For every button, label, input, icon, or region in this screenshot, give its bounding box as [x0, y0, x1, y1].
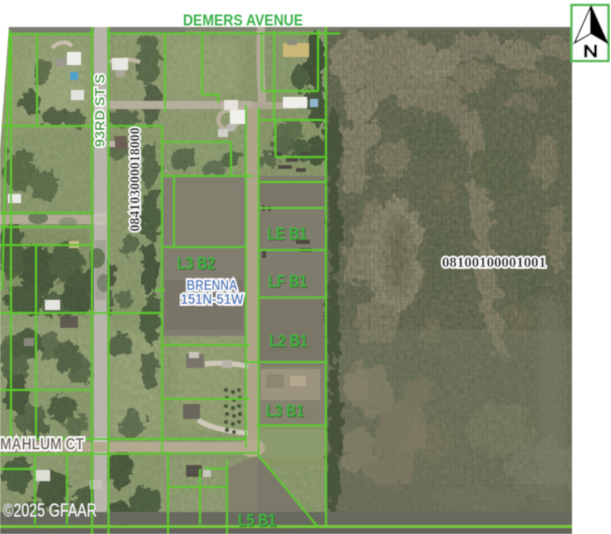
svg-text:L2 B1: L2 B1	[269, 331, 307, 351]
svg-text:LE B1: LE B1	[267, 224, 307, 244]
svg-text:©2025 GFAAR: ©2025 GFAAR	[3, 501, 97, 521]
svg-text:L3 B2: L3 B2	[177, 253, 215, 273]
svg-text:084103000018000: 084103000018000	[128, 128, 144, 232]
svg-text:MAHLUM CT: MAHLUM CT	[0, 435, 85, 454]
svg-text:93RD ST S: 93RD ST S	[92, 74, 108, 147]
svg-text:L5 B1: L5 B1	[238, 510, 276, 530]
svg-text:08100100001001: 08100100001001	[442, 255, 546, 271]
svg-text:DEMERS AVENUE: DEMERS AVENUE	[183, 13, 303, 30]
svg-text:LF B1: LF B1	[268, 271, 307, 291]
svg-text:L3 B1: L3 B1	[266, 401, 304, 421]
svg-text:151N-51W: 151N-51W	[181, 291, 245, 308]
